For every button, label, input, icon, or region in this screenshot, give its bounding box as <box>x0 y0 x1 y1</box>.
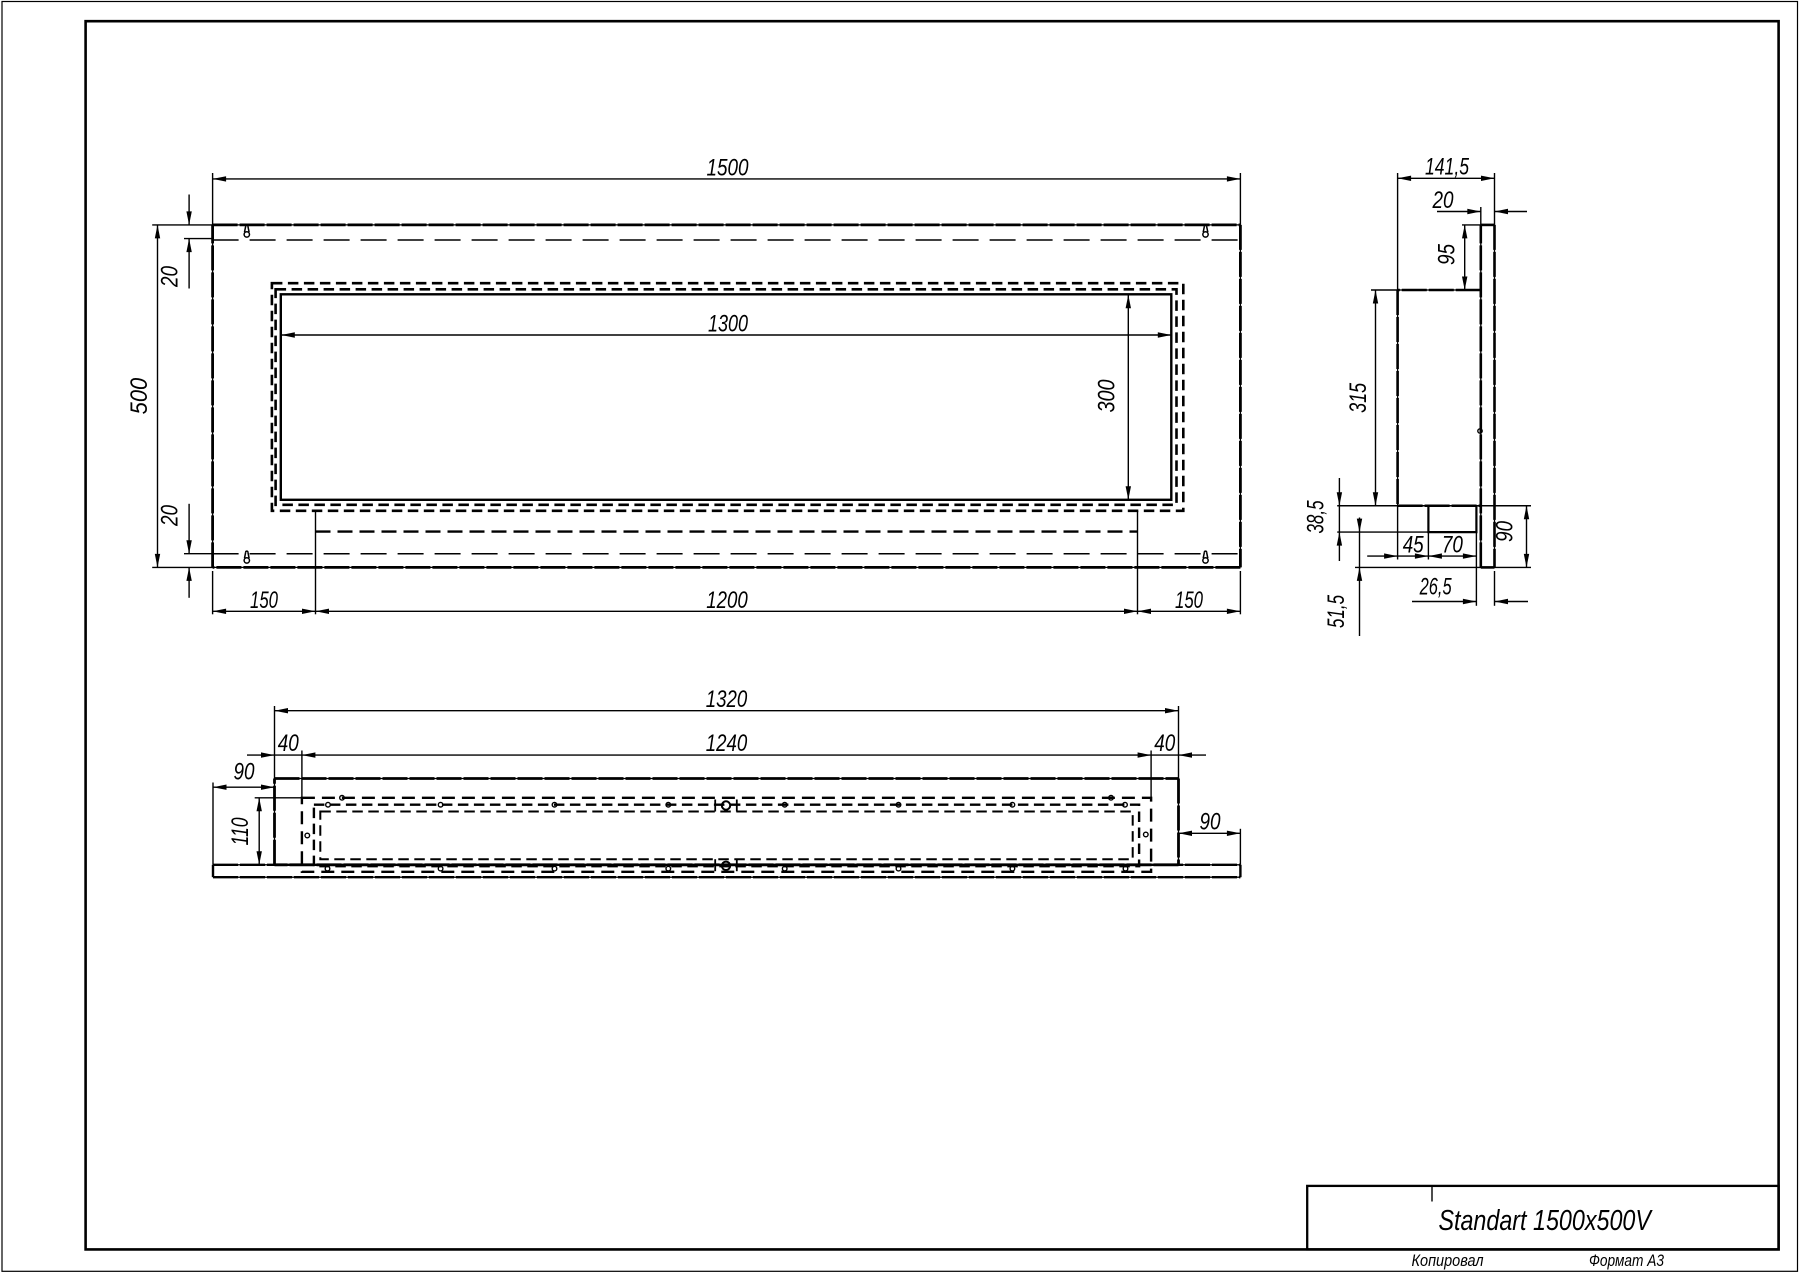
svg-text:150: 150 <box>1175 587 1203 614</box>
svg-text:141,5: 141,5 <box>1425 154 1469 181</box>
svg-text:300: 300 <box>1094 379 1121 413</box>
svg-text:500: 500 <box>126 377 153 414</box>
svg-text:150: 150 <box>250 587 278 614</box>
svg-text:40: 40 <box>1154 730 1176 757</box>
svg-text:90: 90 <box>1200 809 1222 836</box>
svg-text:110: 110 <box>227 817 254 845</box>
svg-text:51,5: 51,5 <box>1323 595 1350 628</box>
svg-text:Standart 1500x500V: Standart 1500x500V <box>1438 1205 1653 1237</box>
svg-text:90: 90 <box>234 759 256 786</box>
svg-text:26,5: 26,5 <box>1419 574 1452 601</box>
svg-text:1320: 1320 <box>706 686 748 713</box>
svg-text:Формат А3: Формат А3 <box>1589 1251 1664 1270</box>
svg-text:1500: 1500 <box>707 155 750 182</box>
svg-text:1240: 1240 <box>706 730 748 757</box>
svg-text:45: 45 <box>1403 532 1425 559</box>
svg-text:1200: 1200 <box>706 587 748 614</box>
svg-text:Копировал: Копировал <box>1412 1251 1484 1270</box>
svg-text:20: 20 <box>1432 187 1454 214</box>
svg-text:20: 20 <box>157 265 184 287</box>
svg-text:95: 95 <box>1434 243 1461 265</box>
svg-text:1300: 1300 <box>708 311 748 338</box>
svg-text:40: 40 <box>278 730 300 757</box>
svg-text:70: 70 <box>1442 532 1464 559</box>
svg-text:90: 90 <box>1492 520 1519 542</box>
svg-text:20: 20 <box>157 504 184 526</box>
svg-text:315: 315 <box>1345 382 1372 412</box>
svg-text:38,5: 38,5 <box>1303 500 1330 533</box>
